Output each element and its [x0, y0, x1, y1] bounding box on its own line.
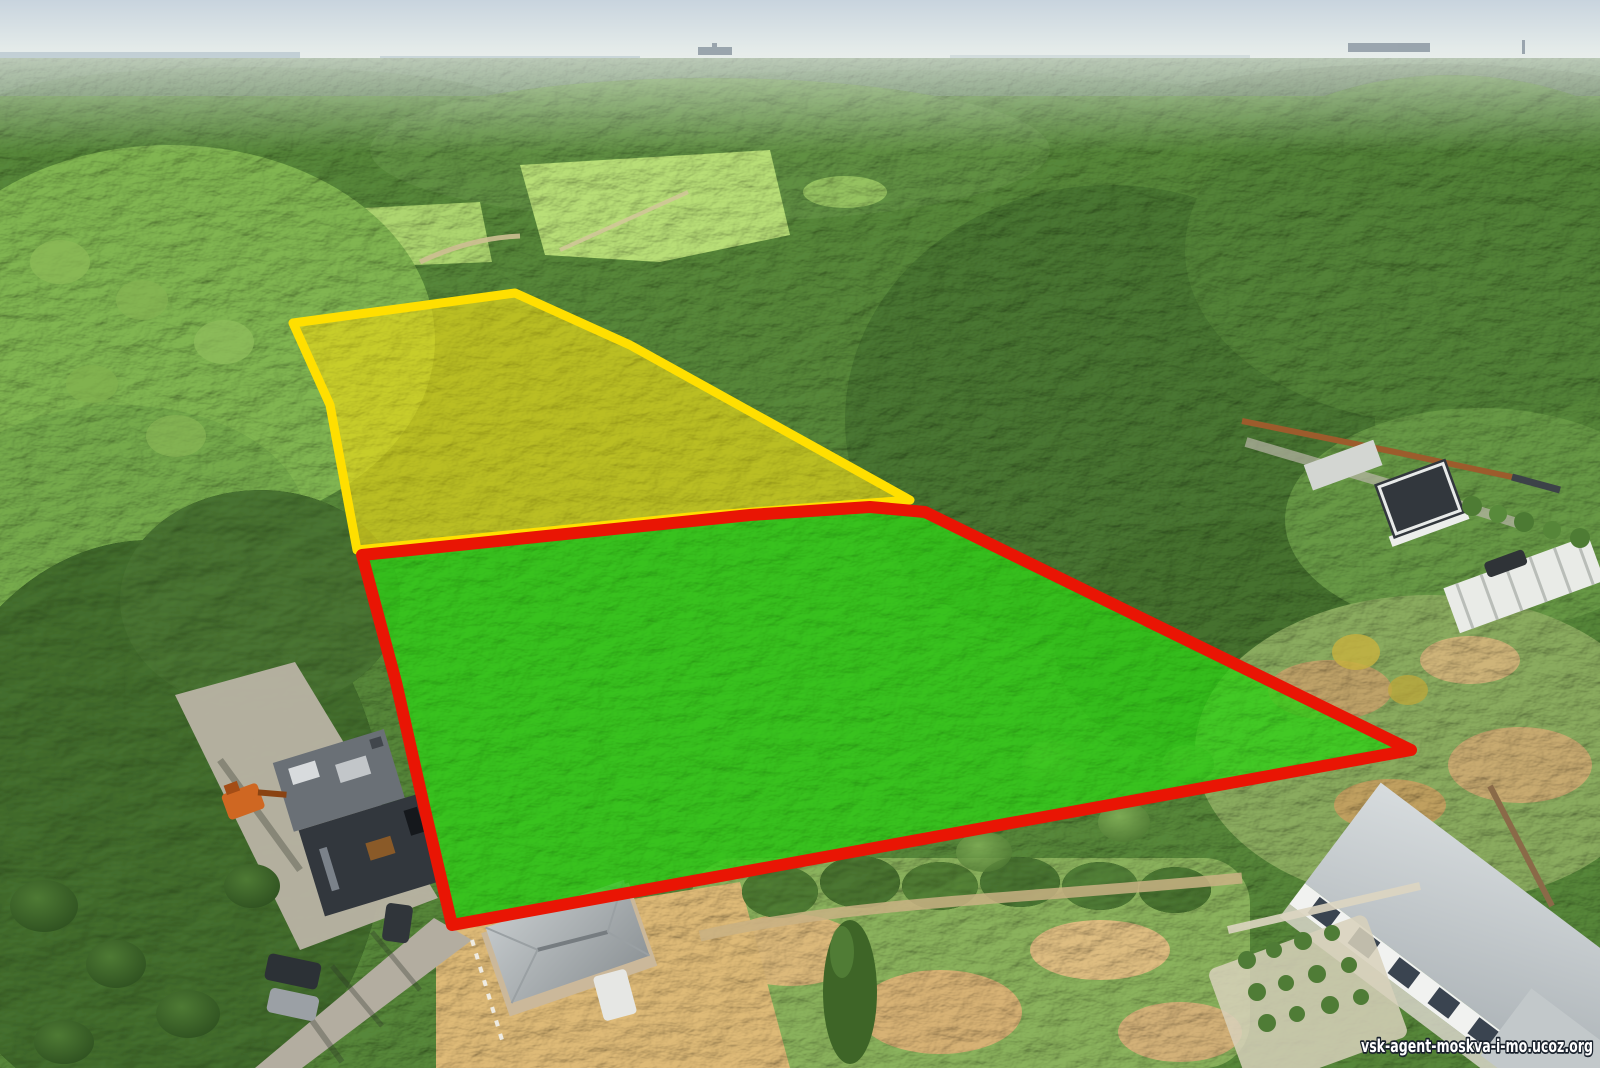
parked-car: [381, 902, 413, 943]
skyline-mast: [1522, 40, 1525, 54]
pine-crown: [156, 990, 220, 1038]
tree-crown: [146, 415, 206, 457]
horizon-haze: [0, 58, 1600, 153]
tree-row: [820, 856, 900, 908]
sandy-patch: [1030, 920, 1170, 980]
bush: [1570, 528, 1590, 548]
tree-crown: [194, 320, 254, 364]
pine-crown: [224, 864, 280, 908]
distant-water-strip: [0, 52, 300, 59]
pine-crown: [34, 1020, 94, 1064]
bush: [1543, 521, 1561, 539]
bush: [1462, 496, 1482, 516]
pine-crown: [86, 940, 146, 988]
sandy-patch: [858, 970, 1022, 1054]
yellow-deciduous-crown: [1388, 675, 1428, 705]
tree-crown: [66, 365, 118, 403]
tree-crown: [116, 280, 168, 320]
skyline-tower: [712, 43, 717, 51]
bush: [1514, 512, 1534, 532]
tree-crown: [30, 240, 90, 284]
aerial-photo-land-plots: vsk-agent-moskva-i-mo.ucoz.org: [0, 0, 1600, 1068]
bare-ground: [1420, 636, 1520, 684]
conifer-highlight: [830, 926, 854, 978]
aerial-photo-canvas: vsk-agent-moskva-i-mo.ucoz.org: [0, 0, 1600, 1068]
watermark-text: vsk-agent-moskva-i-mo.ucoz.org: [1361, 1037, 1593, 1057]
clearing-meadow: [803, 176, 887, 208]
tree-crown: [956, 832, 1012, 872]
bush: [1489, 505, 1507, 523]
yellow-deciduous-crown: [1332, 634, 1380, 670]
pine-crown: [10, 880, 78, 932]
bare-ground: [1448, 727, 1592, 803]
skyline-block: [1348, 43, 1430, 52]
